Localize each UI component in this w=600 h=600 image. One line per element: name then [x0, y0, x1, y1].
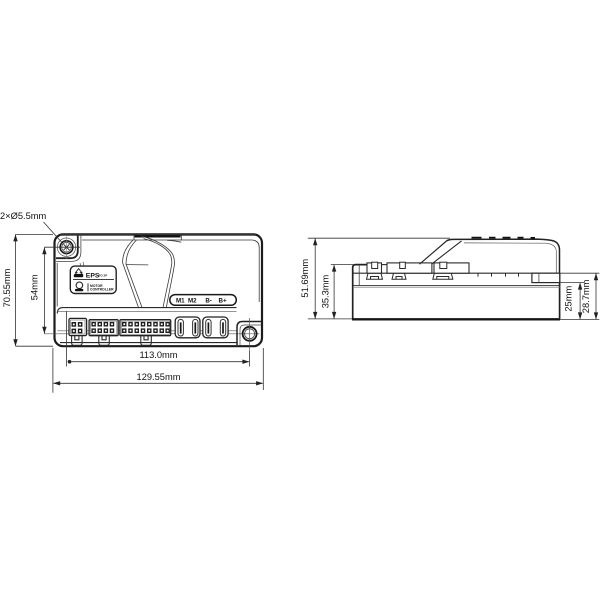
svg-text:28.7mm: 28.7mm — [581, 279, 591, 313]
svg-text:129.55mm: 129.55mm — [137, 372, 181, 382]
svg-text:51.69mm: 51.69mm — [300, 259, 310, 298]
svg-text:113.0mm: 113.0mm — [139, 350, 177, 360]
svg-text:2×Ø5.5mm: 2×Ø5.5mm — [0, 211, 46, 221]
svg-text:CONTROLLER: CONTROLLER — [90, 288, 114, 292]
svg-text:M2: M2 — [188, 298, 197, 305]
svg-text:25mm: 25mm — [563, 286, 573, 312]
svg-text:70.55mm: 70.55mm — [2, 268, 12, 307]
svg-text:M1: M1 — [176, 298, 185, 305]
svg-text:B-: B- — [205, 298, 212, 305]
svg-text:B+: B+ — [219, 298, 227, 305]
svg-text:54mm: 54mm — [29, 274, 39, 300]
svg-text:35.3mm: 35.3mm — [320, 274, 330, 308]
svg-text:-TO 2P: -TO 2P — [98, 274, 108, 278]
